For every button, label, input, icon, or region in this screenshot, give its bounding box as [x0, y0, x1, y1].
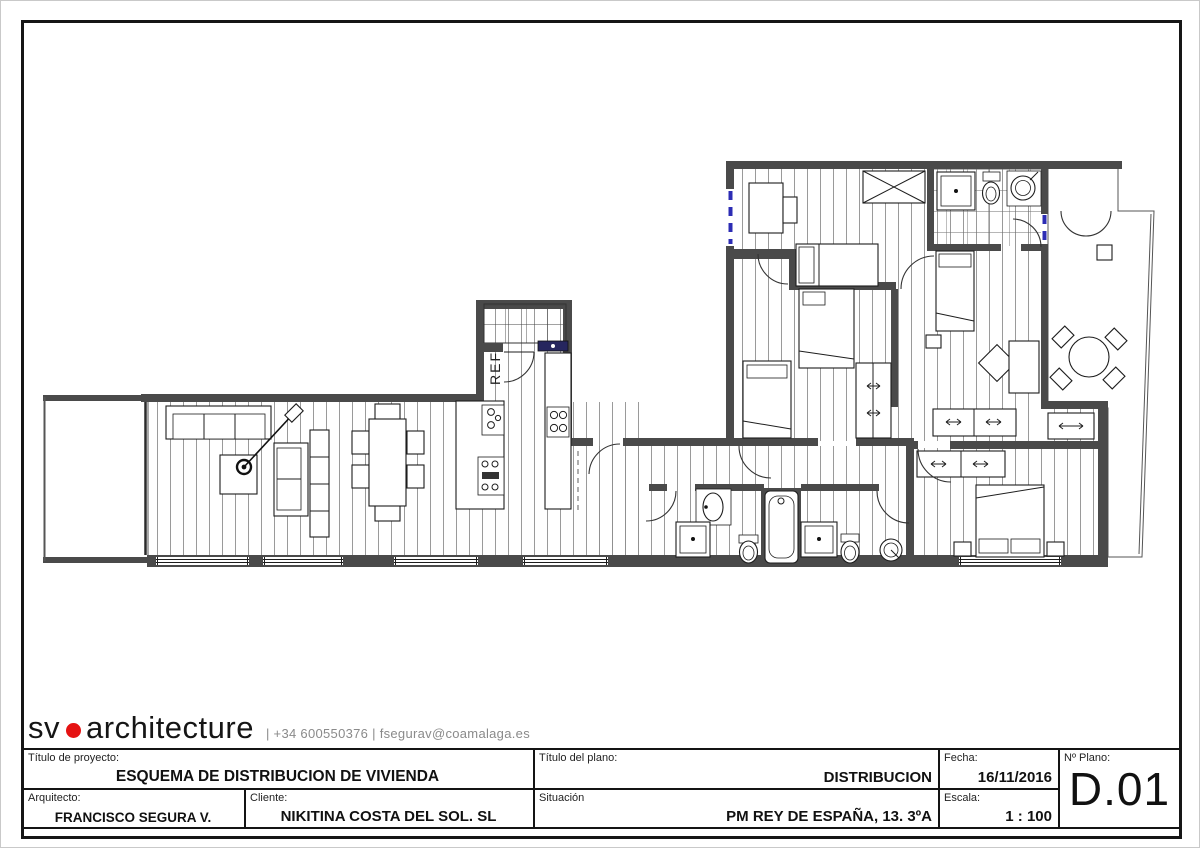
- cell-architect-client: Arquitecto: FRANCISCO SEGURA V. Cliente:…: [24, 790, 533, 827]
- situation-label: Situación: [539, 792, 584, 804]
- architect-value: FRANCISCO SEGURA V.: [28, 810, 238, 825]
- logo-architecture: architecture: [86, 710, 254, 746]
- date-value: 16/11/2016: [944, 769, 1052, 786]
- sheet-frame: sv architecture | +34 600550376 | fsegur…: [21, 20, 1182, 839]
- plan-title-label: Título del plano:: [539, 752, 617, 764]
- cell-project: Título de proyecto: ESQUEMA DE DISTRIBUC…: [24, 750, 533, 790]
- cell-client: Cliente: NIKITINA COSTA DEL SOL. SL: [244, 790, 533, 827]
- logo: sv architecture | +34 600550376 | fsegur…: [28, 707, 530, 749]
- scale-label: Escala:: [944, 792, 980, 804]
- scale-value: 1 : 100: [944, 808, 1052, 825]
- logo-contact: | +34 600550376 | fsegurav@coamalaga.es: [266, 726, 530, 741]
- situation-value: PM REY DE ESPAÑA, 13. 3ºA: [539, 808, 932, 825]
- architect-label: Arquitecto:: [28, 792, 81, 804]
- plan-title-value: DISTRIBUCION: [539, 769, 932, 786]
- cell-scale: Escala: 1 : 100: [938, 790, 1058, 827]
- drawing-sheet: REF: [0, 0, 1200, 848]
- cell-situation: Situación PM REY DE ESPAÑA, 13. 3ºA: [533, 790, 938, 827]
- logo-dot-icon: [66, 723, 81, 738]
- title-block: Título de proyecto: ESQUEMA DE DISTRIBUC…: [24, 748, 1179, 829]
- cell-plan-title: Título del plano: DISTRIBUCION: [533, 750, 938, 790]
- project-label: Título de proyecto:: [28, 752, 119, 764]
- client-value: NIKITINA COSTA DEL SOL. SL: [250, 808, 527, 825]
- plan-number-value: D.01: [1060, 750, 1179, 827]
- logo-brand: sv architecture: [28, 710, 254, 746]
- project-value: ESQUEMA DE DISTRIBUCION DE VIVIENDA: [28, 768, 527, 786]
- cell-architect: Arquitecto: FRANCISCO SEGURA V.: [24, 790, 244, 827]
- date-label: Fecha:: [944, 752, 978, 764]
- cell-plan-number: Nº Plano: D.01: [1058, 750, 1179, 827]
- client-label: Cliente:: [250, 792, 287, 804]
- logo-sv: sv: [28, 710, 60, 746]
- cell-date: Fecha: 16/11/2016: [938, 750, 1058, 790]
